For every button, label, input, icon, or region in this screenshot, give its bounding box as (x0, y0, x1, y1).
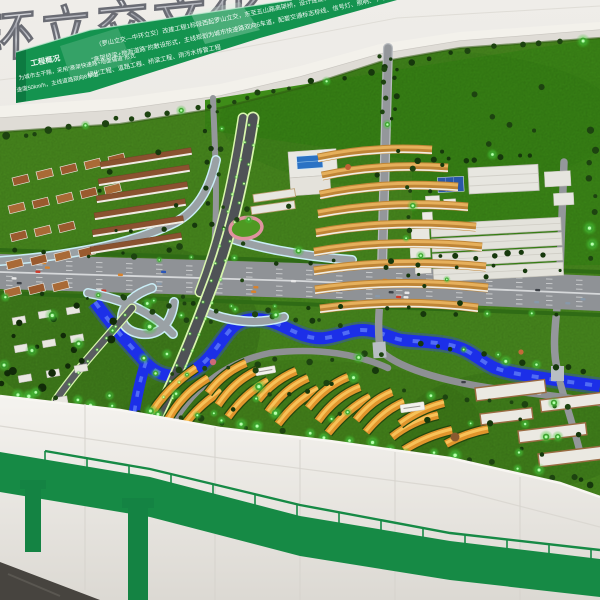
model-tree (114, 116, 119, 121)
model-car (535, 289, 540, 292)
model-tree (372, 367, 379, 374)
model-tree (129, 229, 133, 233)
model-tree (394, 93, 400, 99)
model-tree (216, 110, 219, 113)
model-tree (287, 392, 291, 396)
model-tree (221, 205, 224, 208)
model-tree (24, 133, 28, 137)
model-tree (396, 149, 400, 153)
model-tree (565, 404, 571, 410)
model-tree (539, 84, 545, 90)
model-car (45, 266, 50, 269)
model-tree (203, 185, 208, 190)
model-tree (489, 459, 495, 465)
model-tree (323, 380, 329, 386)
model-tree (287, 87, 291, 91)
model-car (161, 271, 166, 274)
model-tree (448, 50, 452, 54)
model-tree (427, 56, 432, 61)
model-tree (554, 313, 558, 317)
model-tree (226, 366, 230, 370)
model-tree (407, 215, 411, 219)
model-tree (472, 91, 478, 97)
model-tree (182, 301, 186, 305)
model-tree (392, 76, 396, 80)
model-tree (306, 359, 313, 366)
model-tree (443, 394, 448, 399)
model-tree (181, 295, 185, 299)
model-tree (572, 474, 578, 480)
model-tree (559, 269, 562, 272)
flowering-tree (345, 164, 351, 170)
model-tree (415, 263, 420, 268)
model-tree (121, 251, 124, 254)
model-tree (440, 163, 444, 167)
model-tree (16, 320, 22, 326)
model-tree (377, 54, 381, 58)
model-tree (428, 189, 432, 193)
viaduct-pier (20, 480, 46, 489)
model-tree (293, 318, 298, 323)
model-tree (102, 120, 109, 127)
model-tree (481, 351, 487, 357)
model-tree (218, 146, 224, 152)
model-tree (431, 157, 437, 163)
model-car (35, 271, 40, 274)
model-tree (208, 146, 213, 151)
model-tree (380, 110, 385, 115)
model-tree (417, 273, 420, 276)
model-tree (209, 320, 213, 324)
model-car (291, 280, 296, 283)
model-tree (308, 261, 312, 265)
model-tree (309, 318, 315, 324)
model-tree (53, 395, 58, 400)
model-tree (145, 111, 151, 117)
model-tree (329, 382, 333, 386)
model-tree (11, 334, 15, 338)
model-tree (587, 127, 594, 134)
model-tree (395, 68, 398, 71)
scene-canvas: 环立交文化 工程概况 为城市主干路，采用“高架快速路+地面辅道”形式 速度50k… (0, 0, 600, 600)
model-tree (418, 341, 424, 347)
model-tree (532, 129, 536, 133)
model-tree (48, 369, 56, 377)
model-tree (565, 364, 571, 370)
model-tree (74, 303, 80, 309)
model-car (404, 292, 409, 295)
model-tree (240, 278, 244, 282)
model-tree (40, 292, 45, 297)
model-tree (592, 147, 599, 154)
model-tree (121, 295, 127, 301)
model-tree (410, 166, 416, 172)
model-tree (114, 229, 117, 232)
model-tree (457, 300, 463, 306)
model-tree (174, 203, 178, 207)
model-car (565, 302, 570, 305)
model-tree (375, 172, 380, 177)
model-tree (202, 366, 207, 371)
model-tree (492, 264, 496, 268)
model-tree (389, 57, 392, 60)
model-tree (162, 227, 167, 232)
model-tree (2, 132, 10, 140)
model-car (253, 286, 258, 289)
model-tree (409, 59, 415, 65)
model-tree (338, 412, 342, 416)
model-tree (317, 318, 321, 322)
model-tree (440, 150, 444, 154)
model-tree (593, 194, 597, 198)
model-tree (109, 317, 117, 325)
model-tree (214, 309, 219, 314)
model-tree (436, 344, 440, 348)
model-tree (271, 89, 275, 93)
model-car (251, 290, 256, 293)
model-tree (540, 252, 545, 257)
model-tree (484, 274, 489, 279)
model-tree (465, 397, 470, 402)
model-tree (65, 363, 70, 368)
model-tree (464, 158, 469, 163)
model-tree (332, 259, 336, 263)
model-tree (414, 158, 420, 164)
model-tree (473, 256, 478, 261)
model-tree (491, 43, 497, 49)
model-tree (232, 100, 236, 104)
model-tree (448, 347, 453, 352)
model-tree (131, 253, 137, 259)
model-tree (388, 258, 394, 264)
model-tree (452, 253, 458, 259)
model-tree (205, 160, 210, 165)
model-tree (280, 428, 286, 434)
model-tree (587, 482, 594, 489)
model-tree (453, 312, 458, 317)
model-tree (179, 415, 183, 419)
viaduct-pier (122, 498, 154, 508)
model-tree (381, 66, 387, 72)
model-tree (447, 157, 451, 161)
model-tree (455, 266, 459, 270)
model-tree (492, 253, 498, 259)
model-tree (504, 250, 510, 256)
model-tree (167, 247, 172, 252)
model-tree (255, 361, 261, 367)
model-car (157, 282, 162, 285)
model-tree (385, 306, 389, 310)
model-tree (305, 389, 310, 394)
model-car (581, 298, 586, 301)
model-tree (536, 40, 542, 46)
model-tree (244, 206, 250, 212)
model-tree (164, 111, 169, 116)
model-tree (245, 96, 249, 100)
model-tree (402, 388, 406, 392)
model-tree (406, 273, 410, 277)
model-tree (407, 305, 411, 309)
model-tree (149, 309, 155, 315)
model-tree (586, 175, 592, 181)
model-tree (272, 357, 277, 362)
model-tree (267, 392, 271, 396)
model-tree (166, 303, 172, 309)
model-tree (107, 169, 113, 175)
model-tree (98, 189, 102, 193)
model-tree (523, 269, 528, 274)
model-tree (170, 372, 174, 376)
model-tree (379, 352, 384, 357)
model-car (375, 295, 380, 298)
model-tree (490, 114, 495, 119)
model-tree (381, 79, 386, 84)
model-car (12, 277, 17, 280)
model-tree (252, 311, 258, 317)
model-tree (518, 153, 522, 157)
model-tree (79, 358, 85, 364)
model-tree (86, 297, 89, 300)
model-tree (32, 132, 36, 136)
model-tree (519, 360, 525, 366)
model-tree (254, 89, 260, 95)
model-car (17, 282, 22, 285)
model-tree (209, 222, 214, 227)
model-tree (422, 284, 426, 288)
model-tree (393, 107, 397, 111)
model-tree (286, 204, 291, 209)
model-tree (522, 401, 529, 408)
model-tree (384, 265, 389, 270)
warehouse-north (468, 164, 539, 194)
model-tree (557, 39, 563, 45)
model-car (118, 274, 123, 277)
model-tree (45, 126, 53, 134)
model-tree (231, 407, 236, 412)
model-tree (510, 400, 514, 404)
exhibit-photo: 环立交文化 工程概况 为城市主干路，采用“高架快速路+地面辅道”形式 速度50k… (0, 0, 600, 600)
model-tree (306, 306, 310, 310)
model-tree (129, 116, 134, 121)
model-tree (308, 78, 314, 84)
flowering-tree (451, 433, 460, 442)
model-tree (519, 250, 524, 255)
model-tree (207, 104, 212, 109)
model-tree (486, 141, 492, 147)
model-tree (588, 256, 593, 261)
model-car (403, 296, 408, 299)
model-car (534, 301, 539, 304)
model-tree (487, 420, 493, 426)
model-tree (203, 129, 207, 133)
model-tree (390, 117, 393, 120)
model-tree (192, 223, 197, 228)
model-tree (586, 160, 592, 166)
model-tree (528, 153, 532, 157)
model-tree (383, 95, 388, 100)
model-tree (438, 254, 442, 258)
flowering-tree (210, 359, 216, 365)
model-tree (66, 124, 72, 130)
model-tree (520, 42, 526, 48)
model-tree (576, 432, 581, 437)
model-tree (155, 149, 161, 155)
model-tree (195, 105, 200, 110)
model-tree (338, 323, 343, 328)
model-tree (579, 477, 584, 482)
model-tree (342, 76, 347, 81)
model-tree (217, 99, 221, 103)
model-tree (472, 157, 477, 162)
model-tree (176, 243, 183, 250)
model-tree (488, 399, 492, 403)
model-tree (41, 250, 46, 255)
model-tree (191, 301, 196, 306)
model-tree (464, 48, 470, 54)
model-tree (553, 364, 559, 370)
model-car (389, 291, 394, 294)
model-car (396, 296, 401, 299)
model-tree (420, 311, 426, 317)
model-tree (405, 185, 409, 189)
model-tree (217, 172, 221, 176)
model-tree (407, 228, 412, 233)
model-tree (61, 333, 67, 339)
model-tree (206, 201, 211, 206)
model-tree (540, 452, 544, 456)
model-car (461, 381, 466, 383)
model-tree (241, 241, 245, 245)
model-tree (507, 122, 513, 128)
model-tree (12, 248, 17, 253)
model-tree (274, 261, 279, 266)
model-tree (338, 304, 343, 309)
model-tree (87, 255, 90, 258)
flowering-tree (518, 349, 523, 354)
model-tree (592, 209, 598, 215)
model-tree (424, 417, 430, 423)
model-tree (253, 367, 259, 373)
model-tree (330, 358, 334, 362)
model-tree (580, 369, 586, 375)
model-tree (408, 189, 412, 193)
model-tree (368, 69, 375, 76)
